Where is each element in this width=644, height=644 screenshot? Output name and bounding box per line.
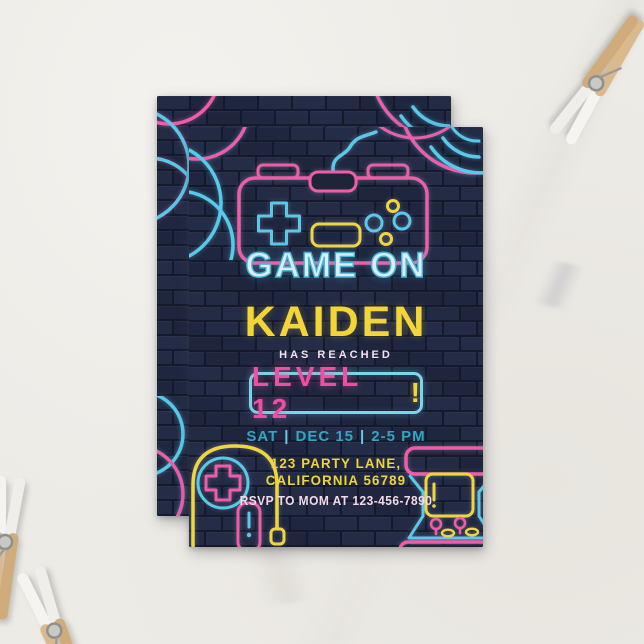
celebrant-name: KAIDEN [189, 298, 483, 347]
event-time: 2-5 PM [371, 428, 425, 445]
headline-text: GAME ON [189, 246, 483, 286]
event-day: SAT [246, 428, 278, 445]
separator: | [360, 428, 365, 445]
clothespin-top-right [538, 2, 644, 155]
address-line-2: CALIFORNIA 56789 [196, 472, 475, 489]
rsvp-line: RSVP TO MOM AT 123-456-7890 [201, 493, 471, 508]
event-datetime-line: SAT|DEC 15|2-5 PM [189, 428, 483, 445]
clothespin-bottom-left [7, 557, 107, 644]
event-date: DEC 15 [296, 428, 355, 445]
event-address: 123 PARTY LANE, CALIFORNIA 56789 [196, 455, 475, 489]
level-badge: LEVEL 12 ! [249, 372, 423, 414]
invitation-card: GAME ON KAIDEN HAS REACHED LEVEL 12 ! SA… [189, 127, 483, 547]
dpad-cross-icon [259, 203, 300, 244]
level-text: LEVEL 12 [252, 361, 404, 425]
address-line-1: 123 PARTY LANE, [196, 455, 475, 472]
level-exclaim: ! [411, 377, 420, 409]
marble-background: GAME ON KAIDEN HAS REACHED LEVEL 12 ! SA… [0, 0, 644, 644]
subline-text: HAS REACHED [189, 349, 483, 361]
separator: | [284, 428, 289, 445]
